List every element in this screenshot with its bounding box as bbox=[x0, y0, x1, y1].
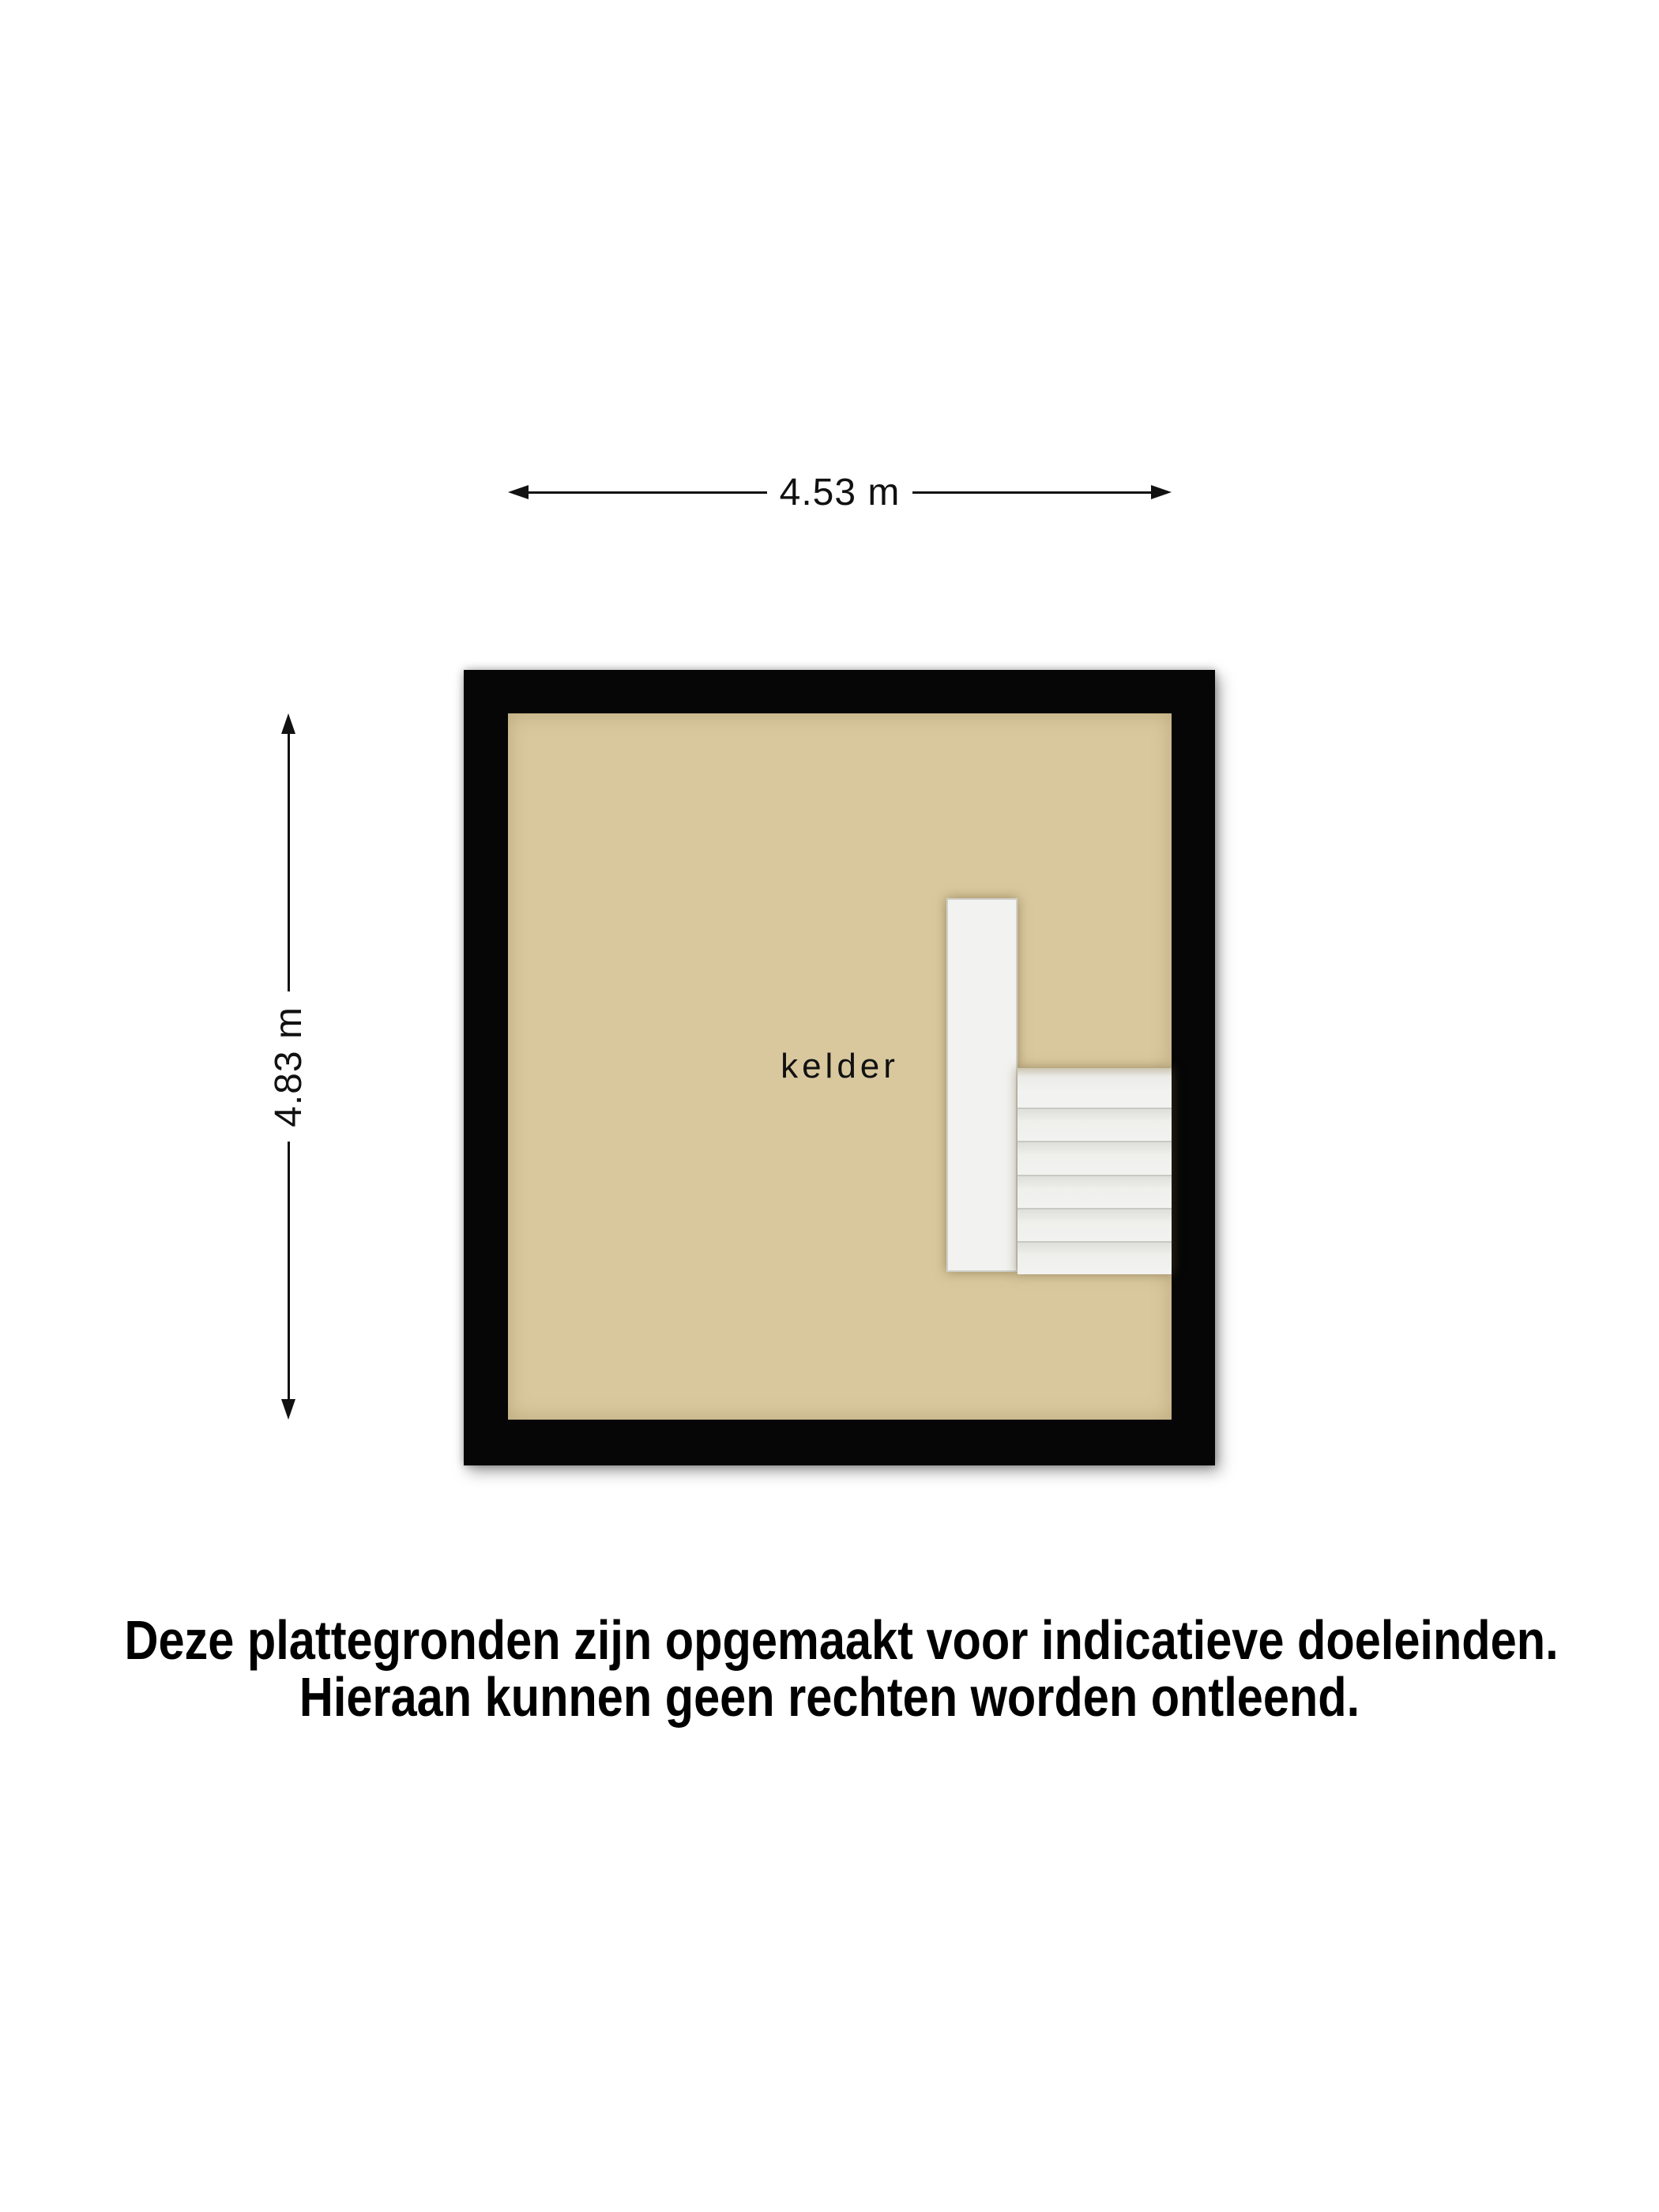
arrow-right-icon bbox=[1151, 485, 1172, 499]
arrow-up-icon bbox=[281, 713, 295, 734]
stair-tread bbox=[1018, 1068, 1172, 1108]
stair-tread bbox=[1018, 1241, 1172, 1274]
room-label: kelder bbox=[781, 1047, 899, 1086]
dimension-line bbox=[912, 491, 1151, 494]
disclaimer: Deze plattegronden zijn opgemaakt voor i… bbox=[125, 1612, 1535, 1725]
height-dimension-label-wrap: 4.83 m bbox=[250, 991, 326, 1142]
arrow-left-icon bbox=[508, 485, 529, 499]
width-dimension: 4.53 m bbox=[508, 454, 1172, 530]
disclaimer-line-2: Hieraan kunnen geen rechten worden ontle… bbox=[125, 1668, 1535, 1725]
stair-stringer bbox=[946, 898, 1018, 1272]
dimension-line bbox=[288, 734, 290, 991]
disclaimer-line-1: Deze plattegronden zijn opgemaakt voor i… bbox=[125, 1612, 1535, 1668]
height-dimension: 4.83 m bbox=[250, 713, 326, 1420]
dimension-line bbox=[288, 1142, 290, 1399]
dimension-line bbox=[529, 491, 767, 494]
stair-tread bbox=[1018, 1108, 1172, 1141]
stair-tread bbox=[1018, 1141, 1172, 1174]
width-dimension-label: 4.53 m bbox=[767, 471, 913, 514]
stair-tread bbox=[1018, 1208, 1172, 1241]
staircase-steps bbox=[1018, 1068, 1172, 1274]
arrow-down-icon bbox=[281, 1399, 295, 1420]
kelder-outer-wall: kelder bbox=[464, 670, 1215, 1465]
height-dimension-label: 4.83 m bbox=[267, 1006, 310, 1127]
kelder-floor: kelder bbox=[508, 713, 1172, 1420]
stair-tread bbox=[1018, 1175, 1172, 1208]
